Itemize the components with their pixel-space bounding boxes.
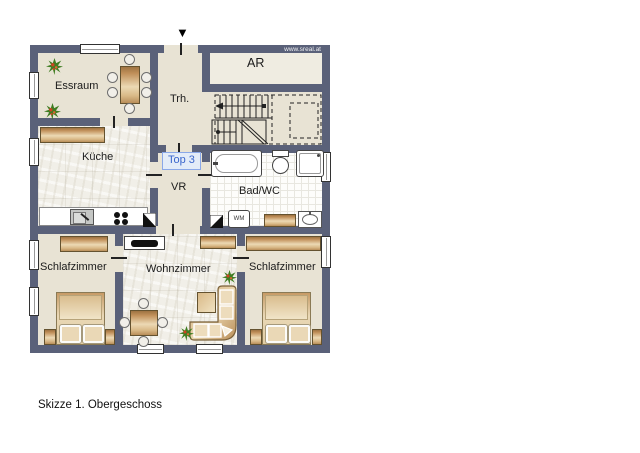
door-opening-schlafzimmer-rechts (237, 246, 245, 272)
caption: Skizze 1. Obergeschoss (38, 399, 162, 411)
room-label-bad-wc: Bad/WC (239, 185, 280, 197)
wardrobe (60, 236, 108, 252)
nightstand (105, 329, 115, 345)
door-tick (111, 257, 127, 259)
plant-icon (46, 58, 63, 75)
room-label-wohnzimmer: Wohnzimmer (146, 263, 211, 275)
door-opening-vorraum-wohnzimmer (156, 226, 200, 234)
room-abstellraum (210, 53, 322, 84)
wall (30, 345, 330, 353)
door-tick (113, 116, 115, 128)
chair (124, 54, 135, 65)
door-tick (180, 43, 182, 55)
floorplan-page: ▼ (0, 0, 640, 453)
room-label-treppenhaus: Trh. (170, 93, 189, 105)
pillow (289, 325, 310, 343)
blanket (265, 295, 308, 320)
bathtub (211, 150, 262, 177)
shower (296, 150, 324, 177)
chair (141, 72, 152, 83)
washing-machine: WM (228, 210, 250, 228)
window (196, 344, 223, 354)
plant-icon (179, 326, 194, 341)
stove (112, 211, 129, 225)
chair (138, 298, 149, 309)
watermark: www.sreal.at (284, 45, 321, 53)
chair (107, 72, 118, 83)
chair (119, 317, 130, 328)
room-label-schlafzimmer-rechts: Schlafzimmer (249, 261, 316, 273)
living-table (130, 310, 158, 336)
wall (202, 84, 330, 92)
window (29, 138, 39, 166)
blanket (59, 295, 102, 320)
chair (157, 317, 168, 328)
chair (138, 336, 149, 347)
chair (107, 87, 118, 98)
shower-drain (317, 154, 320, 157)
door-tick (146, 174, 162, 176)
window (29, 240, 39, 270)
sofa (188, 284, 238, 342)
kitchen-sink (70, 209, 94, 225)
floorplan: Top 3 WM (30, 45, 330, 353)
faucet (309, 211, 311, 215)
door-tick (233, 257, 249, 259)
dining-table (120, 66, 140, 104)
room-label-schlafzimmer-links: Schlafzimmer (40, 261, 107, 273)
room-label-vorraum: VR (171, 181, 186, 193)
door-threshold-icon (210, 215, 223, 228)
staircase (202, 92, 322, 145)
nightstand (312, 329, 322, 345)
door-threshold-icon (143, 213, 156, 227)
bathroom-sink (298, 211, 322, 228)
stair-direction-arrow (215, 103, 223, 110)
tv-stand (124, 236, 165, 250)
window (321, 236, 331, 268)
room-label-kueche: Küche (82, 151, 113, 163)
pillow (83, 325, 104, 343)
kitchen-sideboard (40, 127, 105, 143)
unit-badge: Top 3 (162, 152, 201, 170)
door-opening-schlafzimmer-links (115, 246, 123, 272)
toilet-tank (272, 150, 289, 157)
nightstand (250, 329, 262, 345)
door-tick (172, 224, 174, 236)
window (29, 287, 39, 316)
room-label-abstellraum: AR (247, 56, 264, 70)
wall (150, 45, 158, 126)
wall (202, 145, 210, 234)
sideboard (200, 236, 236, 249)
bathroom-counter (264, 214, 296, 227)
tv (131, 240, 158, 247)
wardrobe (246, 236, 321, 251)
window (80, 44, 120, 54)
plant-icon (222, 270, 237, 285)
window (29, 72, 39, 99)
entrance-arrow-icon: ▼ (176, 26, 189, 39)
plant-icon (44, 103, 61, 120)
toilet (272, 157, 289, 174)
nightstand (44, 329, 56, 345)
pillow (60, 325, 81, 343)
chair (141, 87, 152, 98)
pillow (266, 325, 287, 343)
faucet (213, 162, 218, 165)
room-label-essraum: Essraum (55, 80, 98, 92)
chair (124, 103, 135, 114)
